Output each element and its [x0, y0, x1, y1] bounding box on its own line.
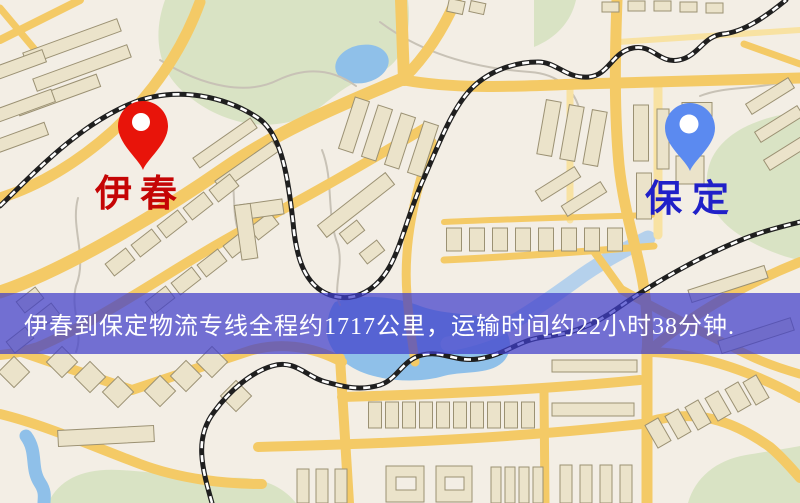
- origin-city-label: 伊春: [95, 176, 185, 213]
- red-pin-icon: [118, 101, 168, 170]
- route-info-text: 伊春到保定物流专线全程约1717公里，运输时间约22小时38分钟.: [0, 306, 735, 341]
- map-image: [0, 0, 800, 503]
- blue-pin-icon: [665, 103, 715, 171]
- destination-city-label: 保定: [645, 181, 739, 218]
- map-screenshot: 伊春 保定 伊春到保定物流专线全程约1717公里，运输时间约22小时38分钟.: [0, 0, 800, 503]
- route-info-banner: 伊春到保定物流专线全程约1717公里，运输时间约22小时38分钟.: [0, 293, 800, 354]
